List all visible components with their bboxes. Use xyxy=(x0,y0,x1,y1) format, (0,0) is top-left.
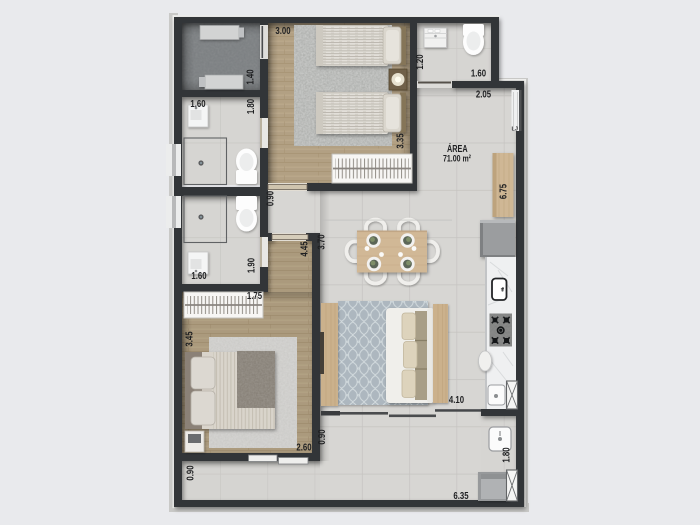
svg-text:4.10: 4.10 xyxy=(449,395,465,406)
svg-text:2.05: 2.05 xyxy=(476,90,492,101)
svg-text:1.60: 1.60 xyxy=(190,99,206,110)
svg-text:3.00: 3.00 xyxy=(275,26,291,37)
svg-text:1.75: 1.75 xyxy=(247,291,263,302)
svg-text:1.80: 1.80 xyxy=(246,99,257,115)
svg-text:3.45: 3.45 xyxy=(185,331,196,347)
svg-text:1.80: 1.80 xyxy=(502,447,513,463)
svg-text:0.90: 0.90 xyxy=(266,191,277,207)
svg-text:1.20: 1.20 xyxy=(415,54,426,70)
svg-text:3.70: 3.70 xyxy=(317,234,328,250)
svg-text:1.60: 1.60 xyxy=(471,69,487,80)
svg-text:4.45: 4.45 xyxy=(300,241,311,257)
svg-text:0.90: 0.90 xyxy=(317,429,328,445)
svg-text:71.00 m²: 71.00 m² xyxy=(443,154,471,165)
svg-text:1.40: 1.40 xyxy=(246,69,257,85)
svg-text:2.60: 2.60 xyxy=(296,443,312,454)
svg-text:1.60: 1.60 xyxy=(191,271,207,282)
svg-text:LJ: LJ xyxy=(512,127,518,133)
svg-text:3.35: 3.35 xyxy=(396,133,407,149)
svg-text:0.90: 0.90 xyxy=(186,465,197,481)
svg-text:1.90: 1.90 xyxy=(247,258,258,274)
svg-text:6.35: 6.35 xyxy=(453,491,469,502)
svg-text:6.75: 6.75 xyxy=(499,184,510,200)
